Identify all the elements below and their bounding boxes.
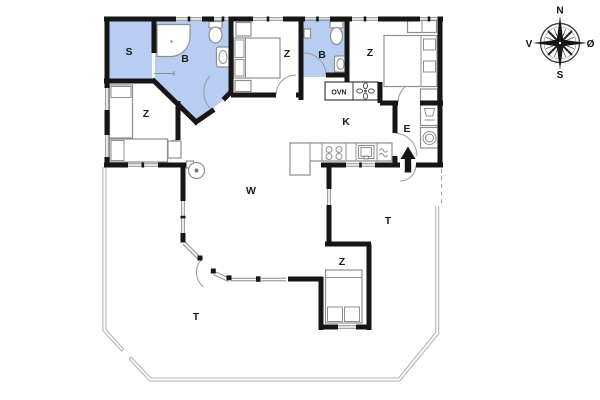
toilet-icon: [209, 22, 222, 44]
compass-south-label: S: [557, 70, 564, 81]
nightstand-icon: [168, 141, 181, 158]
compass-east-label: Ø: [587, 39, 595, 50]
terrace-outline: [103, 167, 442, 381]
room-label-entrance: E: [403, 123, 410, 135]
dresser-icon: [421, 89, 438, 101]
room-label-bathroom1: B: [181, 53, 189, 65]
door-arc-terrace-door: [197, 260, 204, 287]
double-bed-icon: [326, 270, 363, 323]
compass-west-label: V: [526, 39, 533, 50]
floor-plan-screenshot: OVN: [0, 0, 600, 400]
room-label-bedroom-left: Z: [143, 108, 150, 120]
entrance-arrow-icon: [401, 147, 416, 173]
toilet-icon: [330, 22, 343, 45]
compass-rose: N S V Ø: [526, 6, 595, 82]
double-bed-icon: [384, 36, 437, 87]
double-bed-icon: [234, 38, 281, 78]
kitchen-counter: [290, 143, 392, 175]
room-label-bedroom-right: Z: [367, 47, 374, 59]
room-label-bedroom-south: Z: [339, 256, 346, 268]
room-label-kitchen: K: [342, 116, 350, 128]
room-label-terrace-east: T: [385, 215, 392, 227]
room-label-terrace-south: T: [193, 311, 200, 323]
nightstand-icon: [235, 81, 251, 92]
oven-box: OVN: [325, 82, 378, 100]
terrace-step: [122, 349, 132, 359]
floor-plan: OVN: [0, 0, 600, 400]
room-label-sauna: S: [125, 46, 132, 58]
oven-label: OVN: [331, 90, 346, 97]
wardrobe-icon: [236, 23, 251, 37]
bed-icon: [110, 85, 133, 138]
compass-north-label: N: [556, 6, 563, 17]
wood-stove-icon: [187, 161, 205, 179]
shelf-icon: [304, 29, 311, 38]
bed-icon: [110, 139, 168, 162]
room-label-bedroom-mid: Z: [284, 48, 291, 60]
wardrobe-icon: [408, 21, 437, 33]
water-heater-icon: [421, 105, 439, 126]
washing-machine-icon: [421, 128, 439, 149]
room-label-bathroom2: B: [318, 49, 326, 61]
room-label-living-room: W: [246, 185, 256, 197]
sink-icon: [217, 47, 230, 67]
